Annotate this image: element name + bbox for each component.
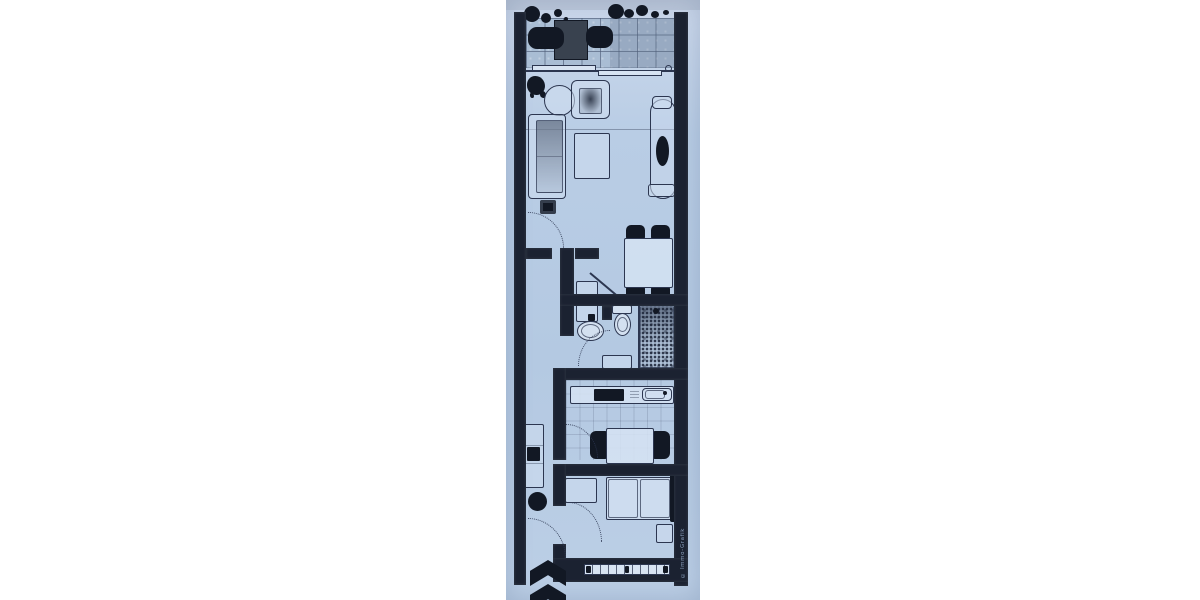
- hall-plant: [528, 492, 547, 511]
- watermark-text: © Immo-Grafik: [680, 438, 686, 578]
- living-room-plant: [527, 76, 545, 95]
- nightstand: [656, 524, 673, 543]
- exterior-wall-left: [514, 12, 526, 585]
- door-arc-bedroom: [568, 502, 602, 542]
- cooktop: [594, 389, 624, 401]
- planter-box-right: [608, 4, 624, 19]
- balcony-tiles-shaded: [610, 18, 674, 68]
- sink-drain: [663, 391, 667, 395]
- hall-shelf-divider: [525, 445, 543, 446]
- drainer-line: [630, 391, 639, 392]
- dining-chair: [651, 225, 670, 239]
- drainer-line: [630, 394, 639, 395]
- hall-shelf-dark-box: [527, 447, 540, 461]
- interior-wall-bathroom-top: [560, 294, 688, 306]
- floor-plan-canvas: © Immo-Grafik: [0, 0, 1200, 600]
- hall-shelf-divider: [525, 463, 543, 464]
- mattress-left: [608, 479, 638, 518]
- sliding-door-panel-right: [598, 70, 662, 76]
- coffee-table: [574, 133, 610, 179]
- dining-chair: [626, 225, 645, 239]
- lounge-chair-headrest: [652, 96, 672, 109]
- bedroom-wardrobe: [565, 478, 597, 503]
- interior-wall-living-hall-mid: [575, 248, 599, 259]
- window-frame-mid: [625, 566, 629, 573]
- lounge-chair-footrest: [648, 184, 675, 197]
- door-handle-mark: [665, 65, 672, 72]
- shower-partition: [638, 306, 640, 368]
- kitchen-chair-right: [653, 431, 670, 459]
- planter-box-left: [524, 6, 540, 22]
- lounge-chair-cushion: [656, 136, 669, 166]
- drainer-line: [630, 397, 639, 398]
- sliding-door-panel-left: [532, 65, 596, 71]
- interior-wall-bedroom-top: [553, 464, 688, 476]
- interior-wall-kitchen-top: [553, 368, 688, 380]
- shower-head: [653, 308, 659, 314]
- north-arrow-icon: [530, 584, 566, 600]
- shower: [640, 306, 674, 368]
- stool: [540, 200, 556, 214]
- window-frame-end: [663, 566, 668, 573]
- toilet-bowl-inner: [617, 317, 628, 332]
- interior-wall-hall-vertical: [560, 248, 574, 336]
- floor-plan-paper: © Immo-Grafik: [506, 0, 700, 600]
- balcony-lounger-left: [528, 27, 564, 49]
- door-arc-living: [528, 212, 564, 248]
- sofa-cushion-divider: [537, 156, 562, 157]
- kitchen-sink-basin: [645, 390, 665, 399]
- washbasin-tap: [588, 314, 595, 321]
- window-frame-end: [586, 566, 591, 573]
- bathroom-stub-wall: [602, 306, 612, 320]
- kitchen-table: [606, 428, 654, 464]
- balcony-lounger-right: [586, 26, 613, 48]
- mattress-right: [640, 479, 670, 518]
- interior-wall-living-hall-left: [526, 248, 552, 259]
- door-arc-entry: [528, 518, 566, 558]
- interior-wall-bedroom-left-upper: [553, 464, 566, 506]
- armchair-cushion: [579, 88, 602, 114]
- interior-wall-kitchen-left: [553, 368, 566, 460]
- dining-table: [624, 238, 673, 288]
